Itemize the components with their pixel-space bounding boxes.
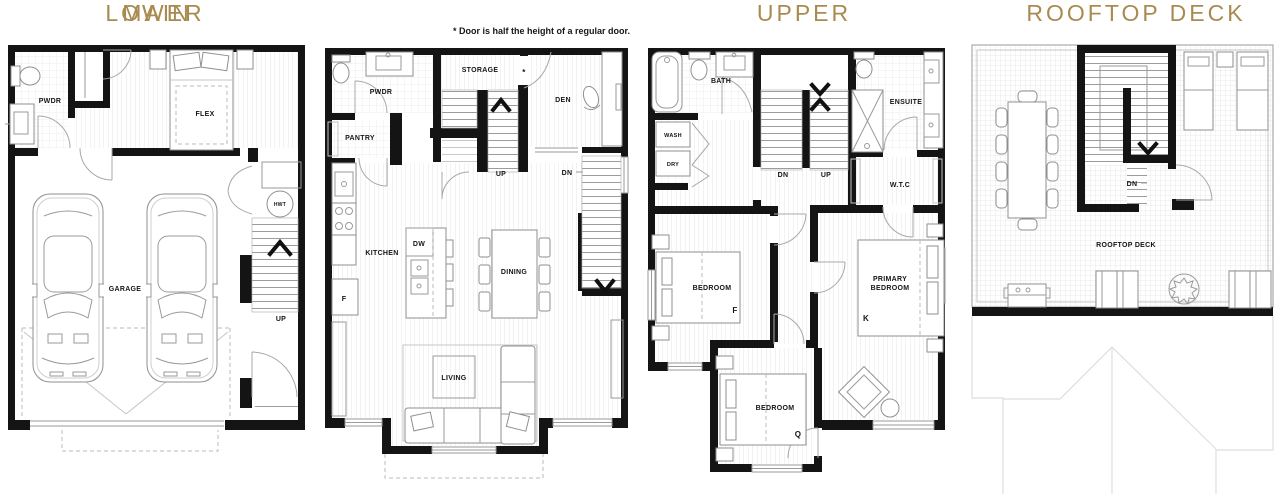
label-ensuite: ENSUITE xyxy=(890,99,922,106)
hwt-icon: HWT xyxy=(262,162,301,217)
label-living: LIVING xyxy=(441,375,466,382)
label-wtc: W.T.C xyxy=(890,182,910,189)
label-dining: DINING xyxy=(501,269,528,276)
car-icon xyxy=(30,194,106,382)
bathtub-icon xyxy=(652,52,682,112)
label-bedroom-f: BEDROOM xyxy=(693,285,732,292)
label-bath: BATH xyxy=(711,78,731,85)
label-dw: DW xyxy=(413,241,425,248)
bench-icon xyxy=(1229,271,1271,308)
label-dn: DN xyxy=(562,170,573,177)
toilet-icon xyxy=(332,55,350,83)
sink-icon xyxy=(716,52,753,77)
label-flex: FLEX xyxy=(195,111,214,118)
label-dn: DN xyxy=(1127,181,1138,188)
label-den: DEN xyxy=(555,97,571,104)
fridge-icon: F xyxy=(332,279,358,315)
label-dn: DN xyxy=(778,172,789,179)
patio-outline xyxy=(385,454,543,478)
label-up: UP xyxy=(276,316,286,323)
floorplan-sheet: LOWER MAIN UPPER ROOFTOP DECK * Door is … xyxy=(0,0,1280,496)
label-rooftop-deck: ROOFTOP DECK xyxy=(1096,242,1156,249)
label-garage: GARAGE xyxy=(109,286,142,293)
roof-outline xyxy=(972,316,1273,494)
wtc-floor xyxy=(856,157,938,205)
island-icon: DW xyxy=(406,228,453,318)
floor-plan-main: F DW xyxy=(320,0,640,496)
car-icon xyxy=(144,194,220,382)
label-primary-1: PRIMARY xyxy=(873,276,907,283)
double-vanity-icon xyxy=(924,52,943,148)
main-floor xyxy=(332,163,621,418)
label-dry: DRY xyxy=(667,162,679,168)
label-bedroom-q: BEDROOM xyxy=(756,405,795,412)
half-door-asterisk: * xyxy=(522,68,526,77)
label-up: UP xyxy=(821,172,831,179)
label-pwdr: PWDR xyxy=(39,98,62,105)
label-kitchen: KITCHEN xyxy=(365,250,398,257)
label-pwdr: PWDR xyxy=(370,89,393,96)
label-bed-size-f: F xyxy=(732,306,737,315)
washer-icon: WASH xyxy=(656,122,690,147)
label-primary-2: BEDROOM xyxy=(871,285,910,292)
stove-icon xyxy=(332,203,356,235)
floor-plan-lower: HWT PWDR FLEX GARAGE UP xyxy=(0,0,320,496)
label-hwt: HWT xyxy=(274,202,286,208)
shower-icon xyxy=(852,90,883,152)
label-up: UP xyxy=(496,171,506,178)
floor-plan-rooftop: DN xyxy=(960,0,1280,496)
toilet-icon xyxy=(854,52,874,78)
label-pantry: PANTRY xyxy=(345,135,375,142)
stairs-up xyxy=(252,218,298,410)
bbq-icon xyxy=(1004,284,1050,307)
label-storage: STORAGE xyxy=(462,67,499,74)
floor-plan-upper: WASH DRY xyxy=(640,0,960,496)
toilet-icon xyxy=(11,66,40,86)
label-bed-size-q: Q xyxy=(795,430,802,439)
label-wash: WASH xyxy=(664,133,682,139)
kitchen-counter xyxy=(332,163,356,265)
label-bed-size-k: K xyxy=(863,314,869,323)
dryer-icon: DRY xyxy=(656,151,690,176)
label-fridge: F xyxy=(342,296,347,303)
sink-icon xyxy=(366,52,413,76)
bench-icon xyxy=(1096,271,1138,308)
